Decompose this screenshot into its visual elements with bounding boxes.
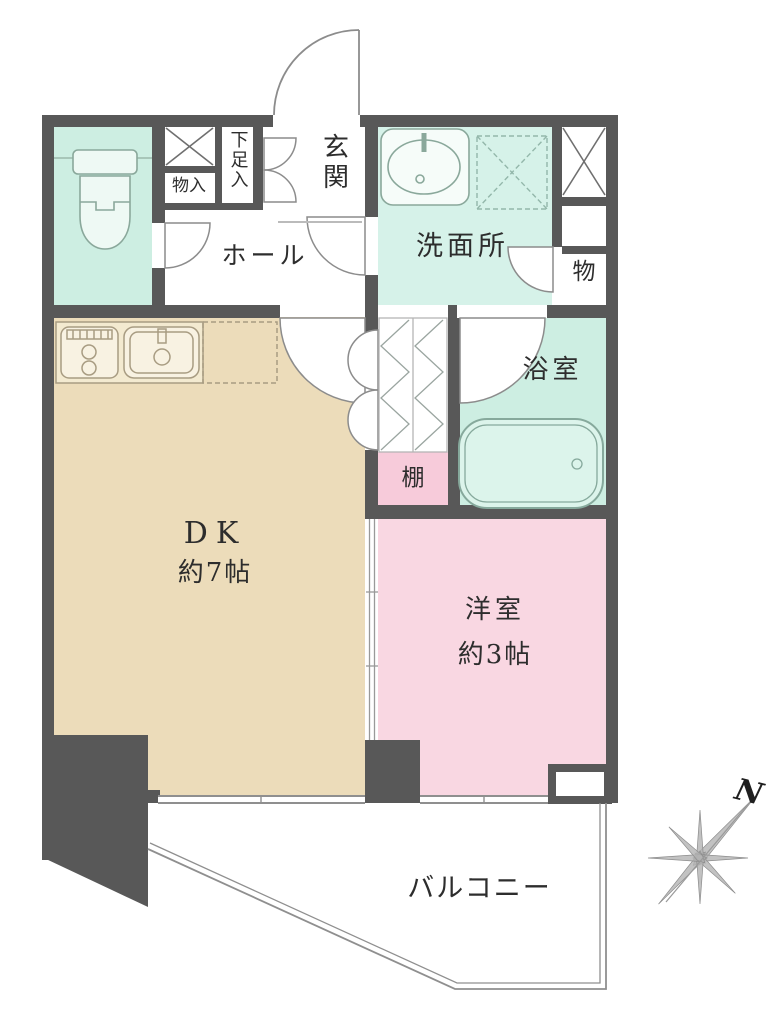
shoe-cabinet-door-arcs	[264, 138, 296, 202]
toilet-fixture	[54, 150, 152, 249]
shelf-label: 棚	[380, 464, 446, 493]
storage-closet-label: 物入	[162, 176, 216, 197]
genkan-label: 玄関	[317, 133, 350, 193]
bathroom-label: 浴室	[495, 354, 610, 387]
compass-north-icon: N	[648, 772, 766, 907]
washroom-label: 洗面所	[390, 230, 535, 264]
closet-hatch	[379, 318, 447, 452]
toilet-door-arc	[165, 223, 210, 268]
window-ticks	[261, 795, 484, 804]
entrance-door-arc	[274, 30, 359, 115]
balcony-label: バルコニー	[372, 872, 587, 906]
dk-size-label: 約7帖	[130, 557, 300, 590]
sliding-partition	[366, 519, 378, 740]
western-room-label: 洋室	[425, 594, 565, 627]
bathtub-fixture	[459, 419, 603, 508]
washer-pan	[477, 136, 547, 209]
vanity-sink-fixture	[381, 129, 469, 205]
plan-linework: N	[0, 0, 766, 1024]
hall-label: ホール	[205, 240, 325, 271]
western-size-label: 約3帖	[415, 639, 575, 672]
floor-plan: N 玄関 下足入 物入 ホール 洗面所 物 浴室 棚 DK 約7帖 洋室 約3帖…	[0, 0, 766, 1024]
kitchen-fixture	[56, 322, 277, 383]
shoe-cabinet-label: 下足入	[226, 130, 249, 190]
storage-label: 物	[562, 258, 606, 287]
compass-n-label: N	[730, 772, 766, 813]
dk-label: DK	[140, 515, 290, 553]
